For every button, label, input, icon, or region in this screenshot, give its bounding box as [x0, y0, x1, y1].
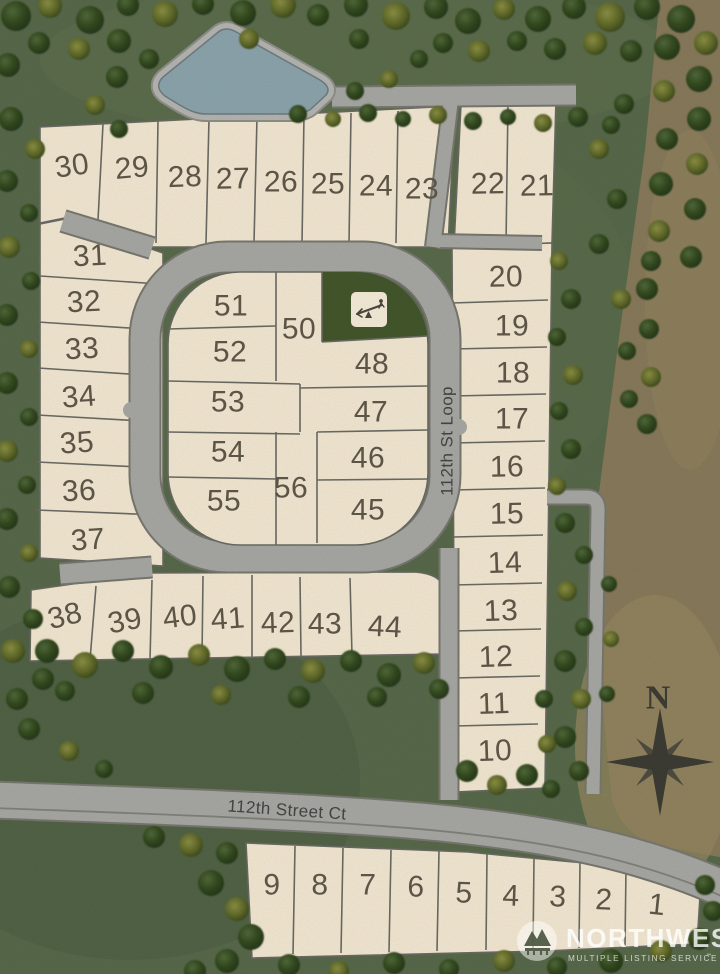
lot-number-48: 48 — [355, 348, 389, 381]
lot-number-30: 30 — [53, 147, 92, 184]
watermark-service-mark: ℠ — [706, 953, 712, 960]
lot-number-1: 1 — [647, 888, 668, 923]
lot-number-25: 25 — [311, 168, 345, 201]
lot-number-22: 22 — [471, 167, 506, 201]
lot-number-33: 33 — [64, 332, 100, 367]
lot-number-54: 54 — [211, 436, 245, 469]
lot-number-50: 50 — [282, 313, 316, 346]
lot-number-9: 9 — [263, 869, 280, 902]
lot-number-55: 55 — [207, 485, 241, 518]
lot-number-34: 34 — [61, 379, 98, 414]
lot-number-41: 41 — [210, 601, 247, 636]
lot-number-46: 46 — [351, 442, 385, 475]
lot-number-19: 19 — [495, 310, 529, 343]
street-label-112th-st-loop: 112th St Loop — [438, 386, 457, 496]
lot-number-32: 32 — [66, 285, 102, 320]
lot-number-18: 18 — [496, 357, 530, 390]
lot-number-43: 43 — [308, 608, 342, 641]
lot-number-56: 56 — [274, 472, 308, 505]
lot-number-29: 29 — [113, 150, 150, 186]
lot-number-35: 35 — [59, 425, 96, 460]
lot-number-51: 51 — [214, 290, 248, 323]
lot-number-7: 7 — [359, 869, 376, 902]
lot-number-37: 37 — [70, 522, 107, 557]
lot-number-13: 13 — [483, 594, 519, 628]
lot-number-21: 21 — [520, 169, 555, 203]
lot-number-16: 16 — [490, 450, 525, 484]
texture-overlay — [0, 0, 720, 974]
lot-number-47: 47 — [354, 396, 388, 429]
lot-number-14: 14 — [487, 546, 523, 580]
lot-number-11: 11 — [477, 687, 510, 721]
lot-number-24: 24 — [359, 170, 393, 203]
lot-number-36: 36 — [61, 474, 97, 509]
lot-number-40: 40 — [161, 599, 199, 636]
site-map-canvas: 1234567891011121314151617181920212223242… — [0, 0, 720, 974]
lot-number-12: 12 — [478, 640, 514, 674]
lot-number-39: 39 — [105, 602, 145, 641]
lot-number-2: 2 — [595, 883, 614, 917]
lot-number-3: 3 — [549, 880, 568, 914]
lot-number-53: 53 — [211, 386, 245, 419]
watermark-tagline: MULTIPLE LISTING SERVICE — [568, 954, 718, 963]
lot-number-4: 4 — [502, 879, 520, 913]
lot-number-8: 8 — [311, 869, 328, 902]
lot-number-31: 31 — [72, 239, 108, 274]
lot-number-45: 45 — [351, 494, 385, 527]
lot-number-28: 28 — [167, 160, 203, 194]
lot-number-52: 52 — [213, 336, 247, 369]
lot-number-26: 26 — [264, 166, 298, 199]
plat-map: 1234567891011121314151617181920212223242… — [0, 0, 720, 974]
watermark-brand: NORTHWEST — [566, 923, 720, 953]
lot-number-17: 17 — [495, 403, 529, 436]
lot-number-5: 5 — [455, 876, 473, 910]
lot-number-15: 15 — [490, 497, 525, 531]
lot-number-42: 42 — [260, 606, 296, 640]
lot-number-44: 44 — [367, 610, 403, 645]
lot-number-10: 10 — [477, 734, 513, 768]
nwmls-watermark: NORTHWEST MULTIPLE LISTING SERVICE ℠ — [517, 921, 720, 963]
lot-number-23: 23 — [405, 173, 439, 206]
lot-number-6: 6 — [407, 870, 425, 903]
lot-number-20: 20 — [489, 260, 524, 294]
compass-north-label: N — [646, 680, 671, 717]
lot-number-27: 27 — [216, 162, 251, 196]
